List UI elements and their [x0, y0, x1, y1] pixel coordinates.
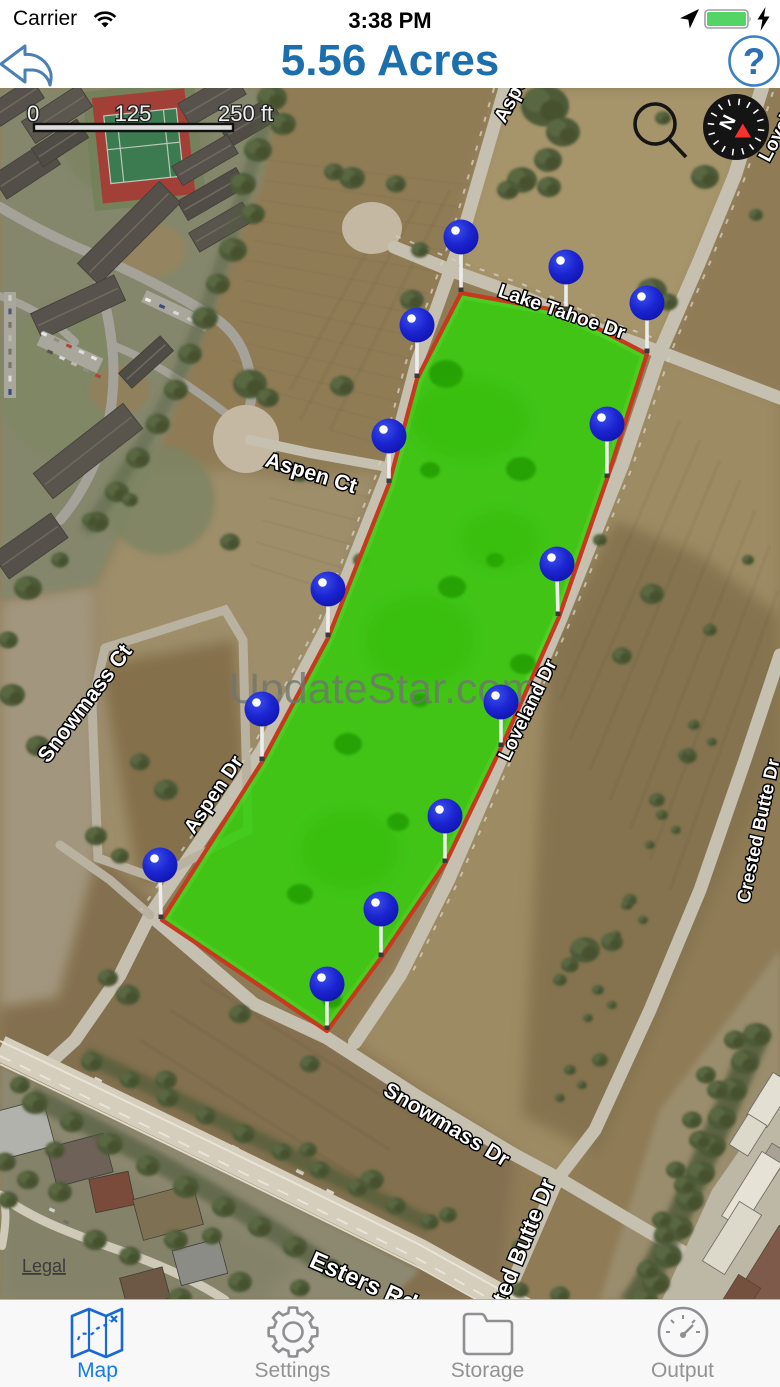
svg-text:?: ?	[743, 41, 766, 82]
svg-text:125: 125	[115, 101, 152, 126]
svg-text:250 ft: 250 ft	[218, 101, 273, 126]
svg-text:Legal: Legal	[22, 1256, 66, 1276]
svg-text:0: 0	[27, 101, 39, 126]
